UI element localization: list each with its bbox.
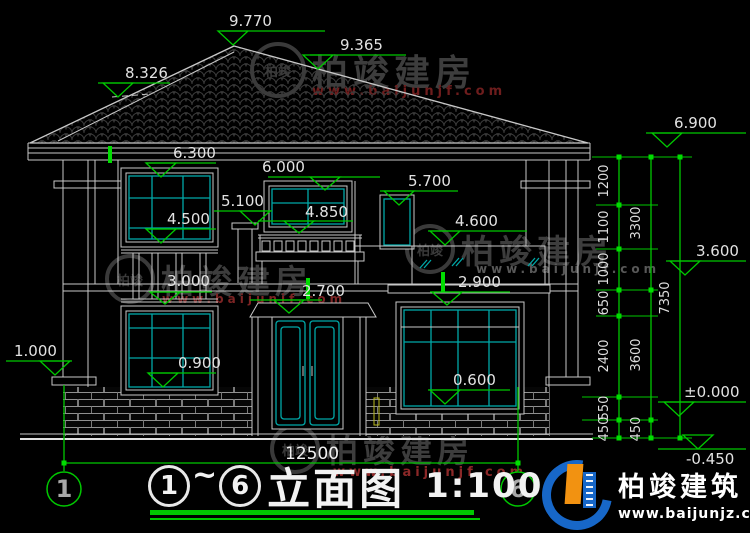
title-underline-thin <box>150 518 480 520</box>
level-right-sill1: 0.600 <box>453 371 496 389</box>
dim-3300: 3300 <box>629 206 644 239</box>
level-left-win-sill: 4.500 <box>167 210 210 228</box>
brand-name: 柏竣建筑 <box>618 465 750 504</box>
level-right-win1-top: 2.900 <box>458 273 501 291</box>
dim-1100: 1100 <box>597 210 612 243</box>
level-door-top: 2.700 <box>302 282 345 300</box>
title-scale: 1:100 <box>425 466 543 506</box>
dim-3600: 3600 <box>629 338 644 371</box>
level-eave: 6.900 <box>674 114 717 132</box>
level-right-band: 4.600 <box>455 212 498 230</box>
elevation-drawing: .w{stroke:#c8c8c8;stroke-width:1;fill:no… <box>0 0 750 533</box>
level-porch-top: 5.100 <box>221 192 264 210</box>
level-right-win-top: 5.700 <box>408 172 451 190</box>
dim-450a: 450 <box>597 417 612 442</box>
glass-marks <box>420 258 539 268</box>
level-left-rail: 3.000 <box>167 272 210 290</box>
title-axis-to: 6 <box>219 465 261 507</box>
level-ridge-right: 9.365 <box>340 36 383 54</box>
balcony-fret-railing <box>262 241 354 251</box>
logo-building-orange <box>565 464 584 504</box>
level-side-ledge: 1.000 <box>14 342 57 360</box>
level-zero: ±0.000 <box>684 383 740 401</box>
dim-650: 650 <box>597 291 612 316</box>
title-name: 立面图 <box>267 455 405 517</box>
entrance-door <box>250 303 379 436</box>
level-balcony-win-top: 6.000 <box>262 158 305 176</box>
title-separator: ~ <box>192 458 217 493</box>
dim-450b: 450 <box>629 417 644 442</box>
level-left-sill1: 0.900 <box>178 354 221 372</box>
title-axis-from: 1 <box>148 465 190 507</box>
cad-elevation-screen: 柏竣 柏竣建房 www.baijunjf.com 柏竣 柏竣建房 www.bai… <box>0 0 750 533</box>
level-ridge-left: 8.326 <box>125 64 168 82</box>
logo-building-blue <box>583 472 596 508</box>
right-2f <box>355 181 545 284</box>
dimension-chain-right: 1200 1100 1000 650 2400 550 450 3300 360… <box>582 155 692 442</box>
dim-1200: 1200 <box>597 164 612 197</box>
level-balcony-sill: 4.850 <box>305 203 348 221</box>
title-underline-thick <box>150 510 474 515</box>
eave-band <box>28 143 590 160</box>
level-left-win-top: 6.300 <box>173 144 216 162</box>
axis-label-1: 1 <box>56 475 73 503</box>
dim-2400: 2400 <box>597 339 612 372</box>
dim-1000: 1000 <box>597 252 612 285</box>
brand-logo: 柏竣建筑 www.baijunjz.com <box>540 456 750 530</box>
level-peak: 9.770 <box>229 12 272 30</box>
level-floor2: 3.600 <box>696 242 739 260</box>
dim-7350: 7350 <box>658 281 673 314</box>
brand-url: www.baijunjz.com <box>618 506 750 522</box>
door-canopy <box>250 303 376 317</box>
brand-logo-icon <box>540 456 614 530</box>
balcony-slab <box>256 252 364 261</box>
drawing-title: 1 ~ 6 立面图 1:100 <box>148 461 543 511</box>
